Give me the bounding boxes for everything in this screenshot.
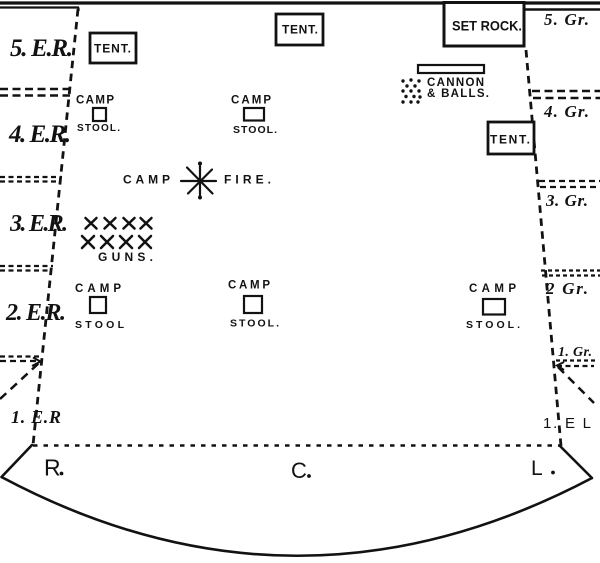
svg-text:1. E L: 1. E L bbox=[543, 415, 591, 432]
svg-text:STOOL.: STOOL. bbox=[233, 124, 277, 136]
svg-text:CAMP: CAMP bbox=[76, 95, 114, 107]
svg-text:4. E.R.: 4. E.R. bbox=[8, 121, 71, 148]
svg-text:5. Gr.: 5. Gr. bbox=[544, 10, 589, 29]
svg-text:2. E.R.: 2. E.R. bbox=[5, 300, 66, 326]
svg-text:2 Gr.: 2 Gr. bbox=[545, 279, 588, 298]
svg-text:GUNS.: GUNS. bbox=[98, 250, 153, 264]
svg-text:R: R bbox=[44, 455, 61, 481]
svg-text:& BALLS.: & BALLS. bbox=[427, 88, 489, 100]
svg-text:4. Gr.: 4. Gr. bbox=[543, 102, 589, 121]
svg-text:TENT.: TENT. bbox=[94, 42, 131, 56]
svg-text:C: C bbox=[291, 458, 307, 483]
svg-text:1. Gr.: 1. Gr. bbox=[558, 345, 592, 360]
svg-text:SET ROCK.: SET ROCK. bbox=[452, 18, 522, 34]
svg-text:TENT.: TENT. bbox=[282, 23, 318, 37]
svg-text:5. E.R.: 5. E.R. bbox=[10, 35, 73, 62]
svg-text:CAMP: CAMP bbox=[231, 95, 271, 107]
svg-text:CAMP: CAMP bbox=[228, 280, 270, 292]
svg-text:TENT.: TENT. bbox=[490, 133, 530, 147]
svg-text:3. E.R.: 3. E.R. bbox=[9, 211, 68, 237]
svg-text:1. E.R: 1. E.R bbox=[11, 407, 61, 427]
svg-text:STOOL.: STOOL. bbox=[77, 123, 120, 134]
svg-text:L: L bbox=[531, 457, 543, 480]
svg-text:3. Gr.: 3. Gr. bbox=[545, 191, 588, 210]
